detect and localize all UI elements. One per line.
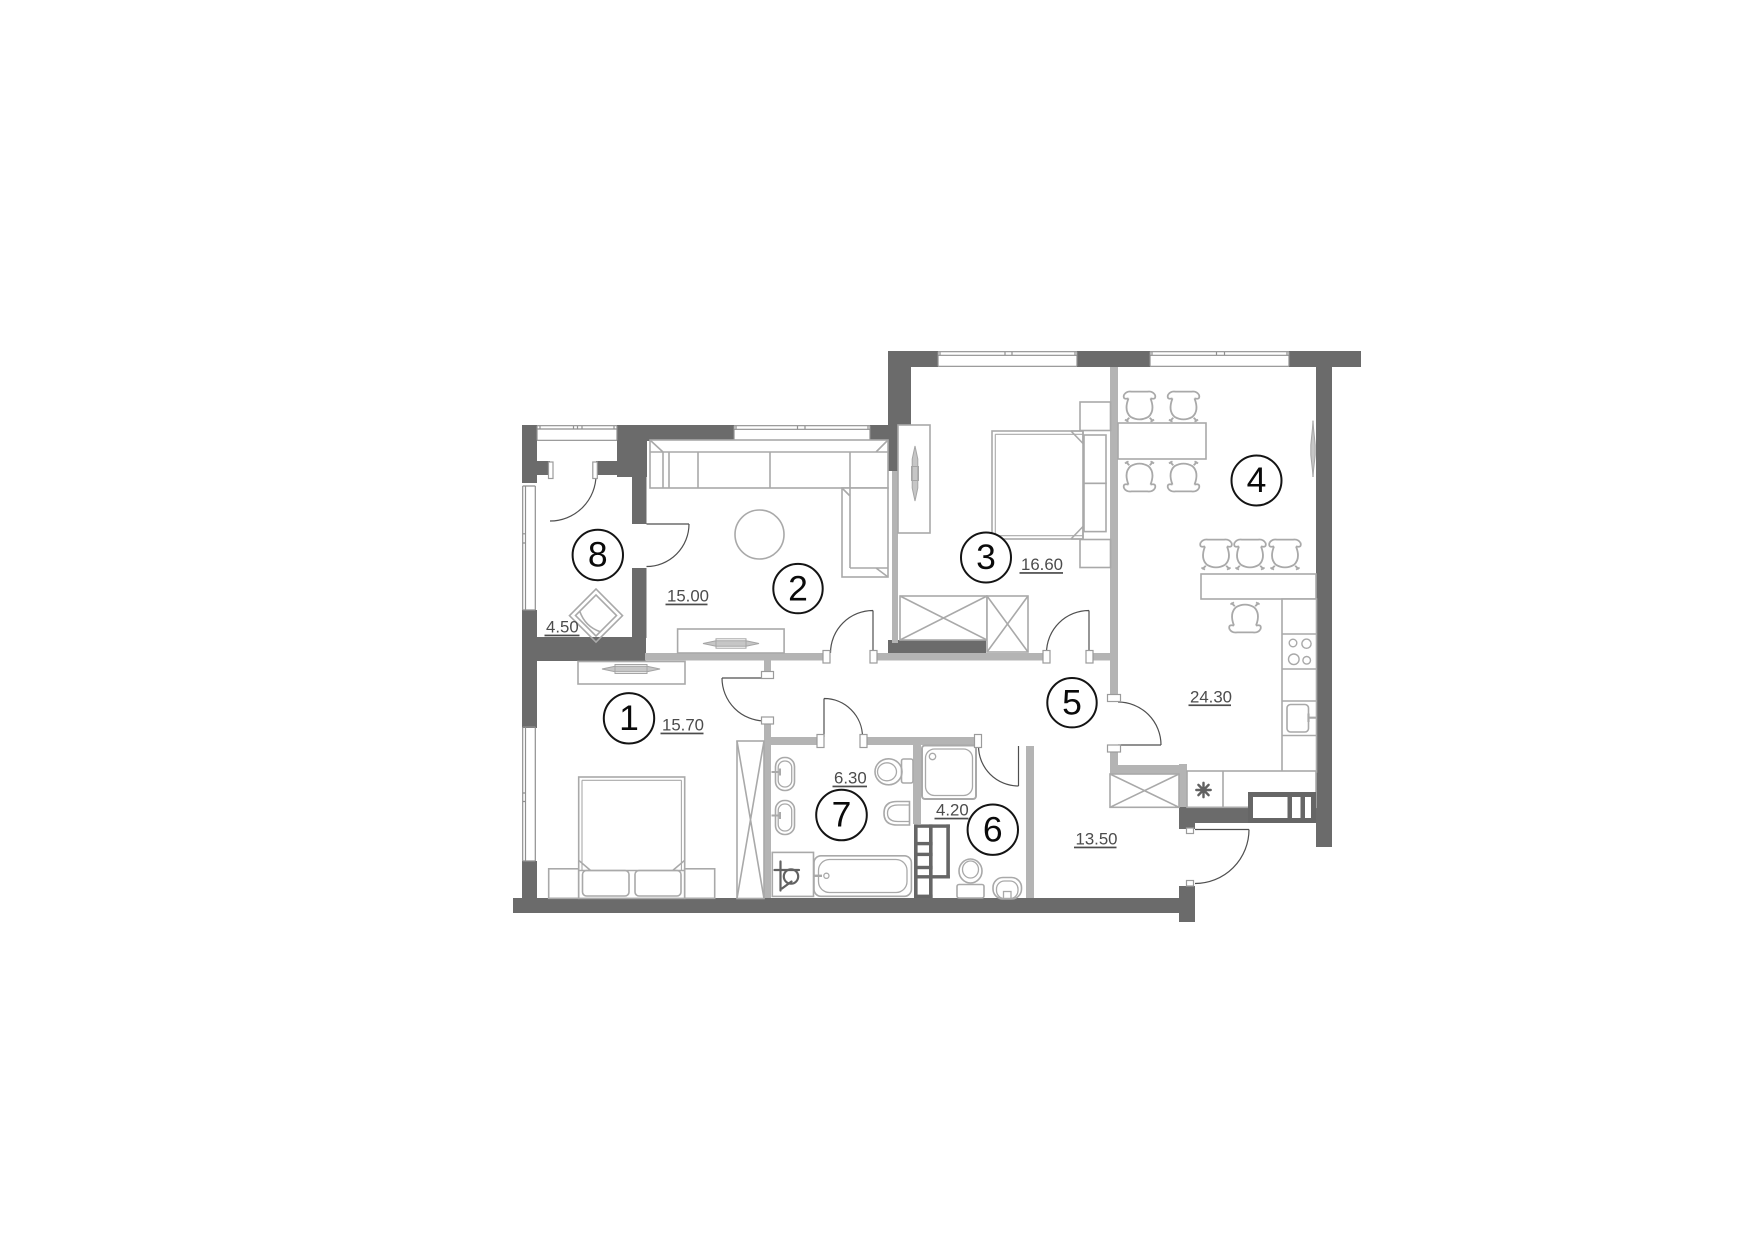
- svg-text:16.60: 16.60: [1021, 555, 1063, 574]
- svg-text:2: 2: [788, 568, 808, 608]
- svg-text:15.70: 15.70: [662, 716, 704, 735]
- svg-text:5: 5: [1062, 682, 1082, 722]
- svg-text:8: 8: [588, 535, 608, 575]
- svg-text:7: 7: [832, 795, 852, 835]
- svg-text:1: 1: [619, 698, 639, 738]
- svg-text:6: 6: [983, 809, 1003, 849]
- svg-text:4: 4: [1247, 460, 1267, 500]
- svg-text:6.30: 6.30: [834, 769, 867, 788]
- svg-text:4.50: 4.50: [546, 618, 579, 637]
- svg-text:24.30: 24.30: [1190, 687, 1232, 706]
- svg-text:15.00: 15.00: [667, 587, 709, 606]
- svg-text:3: 3: [976, 537, 996, 577]
- svg-text:13.50: 13.50: [1076, 830, 1118, 849]
- svg-text:4.20: 4.20: [936, 801, 969, 820]
